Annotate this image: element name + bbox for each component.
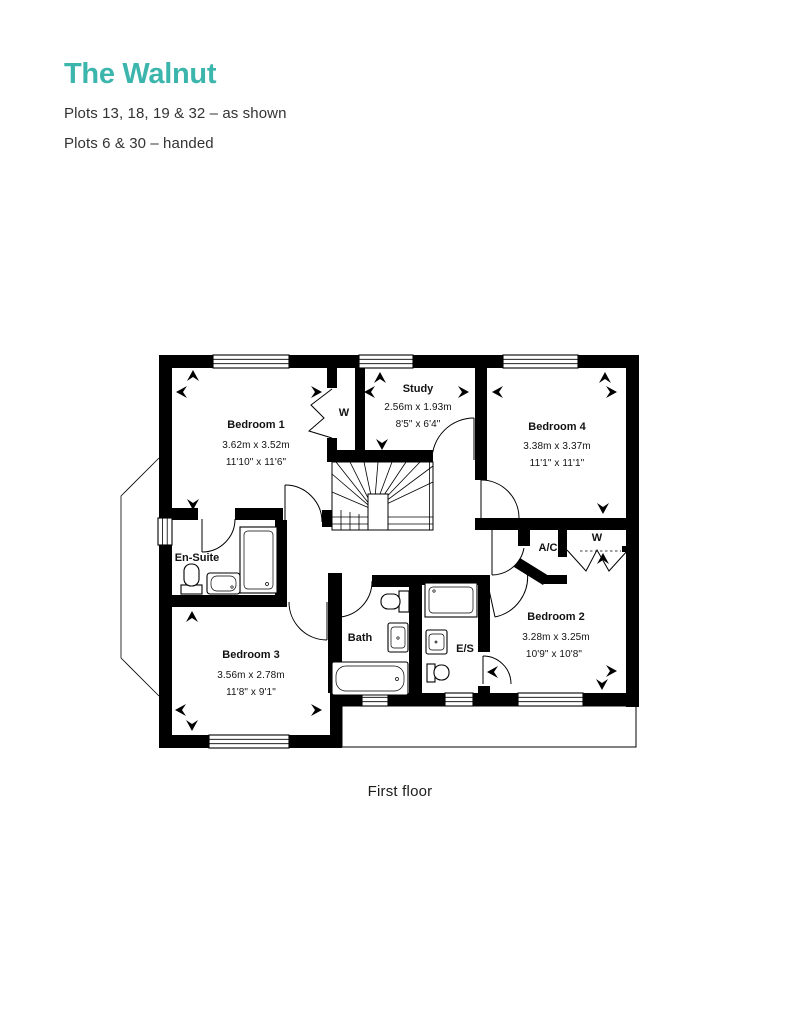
window — [213, 355, 289, 368]
wardrobe-top-label: W — [339, 407, 350, 419]
bath-door — [341, 581, 372, 617]
staircase — [332, 462, 433, 530]
window — [518, 693, 583, 706]
study-label: Study — [403, 383, 434, 395]
study-metric: 2.56m x 1.93m — [384, 402, 451, 413]
bedroom4-label: Bedroom 4 — [528, 421, 586, 433]
es-label: E/S — [456, 643, 474, 655]
window — [359, 355, 413, 368]
bedroom4-imperial: 11'1" x 11'1" — [530, 458, 585, 469]
bedroom2-door — [486, 570, 528, 617]
ac-label: A/C — [539, 542, 558, 554]
bathtub — [332, 662, 408, 695]
bedroom3-door — [289, 602, 327, 640]
window — [503, 355, 578, 368]
ensuite-shower — [240, 527, 277, 593]
page-header: The Walnut Plots 13, 18, 19 & 32 – as sh… — [64, 58, 287, 165]
bedroom1-imperial: 11'10" x 11'6" — [226, 457, 287, 468]
window — [158, 518, 172, 545]
bedroom4-metric: 3.38m x 3.37m — [523, 441, 590, 452]
bath-toilet — [381, 591, 409, 612]
window — [209, 735, 289, 748]
wardrobe-right-label: W — [592, 532, 603, 544]
bedroom3-metric: 3.56m x 2.78m — [217, 670, 284, 681]
bedroom2-imperial: 10'9" x 10'8" — [526, 649, 582, 660]
bedroom1-door — [285, 485, 322, 522]
ensuite-toilet — [181, 564, 202, 594]
ensuite-sink — [207, 573, 240, 594]
bedroom4-door — [481, 480, 519, 518]
es-door — [483, 656, 511, 684]
bedroom3-label: Bedroom 3 — [222, 649, 279, 661]
floor-plan: Bedroom 1 3.62m x 3.52m 11'10" x 11'6" S… — [115, 340, 675, 780]
bedroom1-metric: 3.62m x 3.52m — [222, 440, 289, 451]
bedroom2-label: Bedroom 2 — [527, 611, 584, 623]
ensuite-label: En-Suite — [175, 552, 220, 564]
study-imperial: 8'5" x 6'4" — [396, 419, 441, 430]
es-sink — [426, 630, 447, 654]
plots-handed: Plots 6 & 30 – handed — [64, 135, 287, 152]
bedroom3-imperial: 11'8" x 9'1" — [226, 687, 276, 698]
plots-as-shown: Plots 13, 18, 19 & 32 – as shown — [64, 105, 287, 122]
ensuite-door — [202, 519, 235, 552]
plan-title: The Walnut — [64, 58, 287, 91]
bedroom1-label: Bedroom 1 — [227, 419, 284, 431]
bath-sink — [388, 623, 408, 652]
window — [445, 693, 473, 706]
floor-plan-drawing: Bedroom 1 3.62m x 3.52m 11'10" x 11'6" S… — [115, 340, 675, 780]
es-shower — [425, 583, 477, 617]
es-toilet — [427, 664, 449, 682]
bath-label: Bath — [348, 632, 373, 644]
wardrobe2-bifold-door — [560, 546, 629, 571]
bedroom2-metric: 3.28m x 3.25m — [522, 632, 589, 643]
floor-caption: First floor — [0, 783, 800, 800]
